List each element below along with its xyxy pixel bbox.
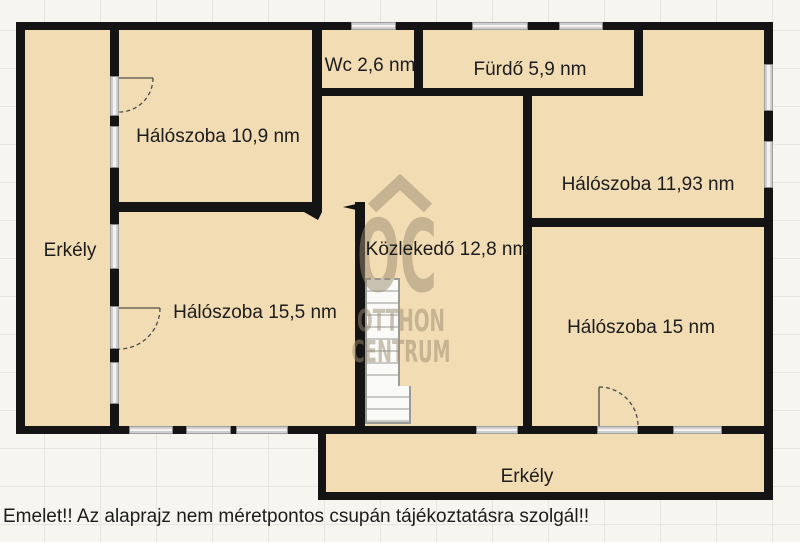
wall-end-arrow — [304, 212, 322, 220]
watermark-line2: CENTRUM — [352, 335, 451, 370]
watermark-line1: OTTHON — [357, 304, 445, 339]
plan-overlay: OC OTTHON CENTRUM — [0, 0, 800, 542]
room-label-erkely-bottom: Erkély — [501, 466, 554, 488]
room-label-haloszoba-10-9: Hálószoba 10,9 nm — [136, 126, 300, 148]
door-swing-halo155 — [119, 308, 160, 349]
disclaimer-caption: Emelet!! Az alaprajz nem méretpontos csu… — [3, 506, 589, 528]
room-label-wc: Wc 2,6 nm — [325, 55, 416, 77]
door-swing-halo15 — [599, 387, 638, 426]
room-label-kozlekedo: Közlekedő 12,8 nm — [366, 239, 529, 261]
room-label-haloszoba-15-5: Hálószoba 15,5 nm — [173, 302, 337, 324]
room-label-haloszoba-15: Hálószoba 15 nm — [567, 317, 715, 339]
room-label-haloszoba-11-93: Hálószoba 11,93 nm — [562, 174, 735, 196]
room-label-furdo: Fürdő 5,9 nm — [474, 59, 587, 81]
room-label-erkely-left: Erkély — [44, 240, 97, 262]
door-swing-halo109 — [119, 78, 153, 112]
watermark-logo: OC OTTHON CENTRUM — [352, 182, 451, 370]
floor-plan: OC OTTHON CENTRUM Hálószoba 10,9 nm Wc 2… — [0, 0, 800, 542]
wall-end-arrow — [343, 202, 365, 212]
